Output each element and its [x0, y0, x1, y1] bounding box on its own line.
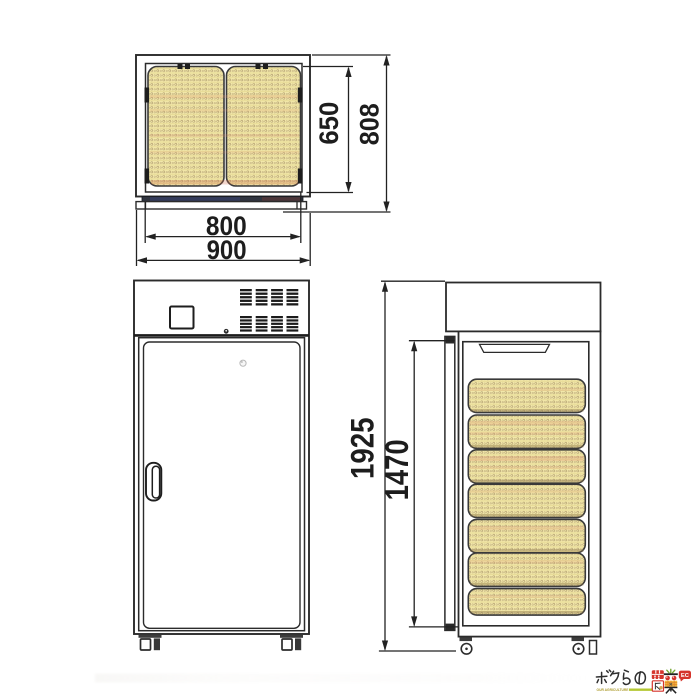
svg-text:650: 650 [314, 102, 344, 145]
svg-text:900: 900 [207, 235, 247, 265]
svg-text:EC: EC [681, 673, 690, 679]
svg-text:OUR AGRICULTURE: OUR AGRICULTURE [597, 688, 630, 692]
svg-text:1925: 1925 [345, 418, 381, 480]
svg-text:808: 808 [355, 103, 385, 145]
svg-text:1470: 1470 [379, 439, 415, 500]
